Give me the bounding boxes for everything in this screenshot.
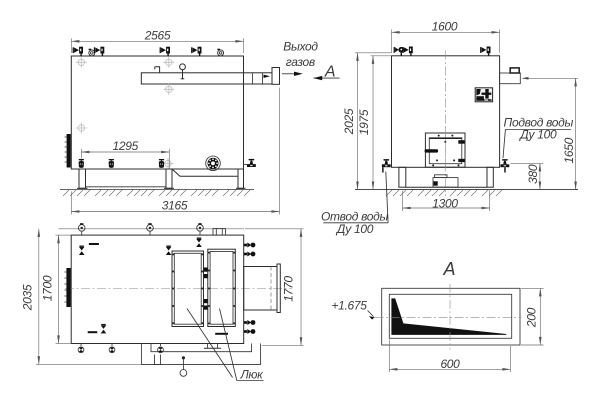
- svg-text:Ду 100: Ду 100: [335, 222, 374, 236]
- svg-text:200: 200: [525, 307, 539, 328]
- svg-text:3165: 3165: [162, 199, 188, 213]
- svg-text:2035: 2035: [21, 284, 35, 311]
- svg-text:1650: 1650: [562, 137, 576, 163]
- svg-text:газов: газов: [286, 55, 315, 69]
- svg-text:380: 380: [526, 164, 540, 184]
- svg-text:1975: 1975: [357, 109, 371, 135]
- svg-text:1700: 1700: [41, 275, 55, 301]
- svg-text:Люк: Люк: [239, 367, 264, 381]
- svg-text:1600: 1600: [432, 20, 458, 34]
- svg-text:Выход: Выход: [283, 40, 318, 54]
- svg-text:1300: 1300: [432, 196, 458, 210]
- svg-text:2565: 2565: [144, 29, 171, 43]
- svg-text:А: А: [442, 259, 455, 279]
- svg-text:1295: 1295: [113, 139, 139, 153]
- svg-text:600: 600: [440, 357, 460, 371]
- svg-text:2025: 2025: [342, 108, 356, 135]
- svg-text:+1.675: +1.675: [331, 299, 367, 313]
- svg-text:1770: 1770: [282, 276, 296, 302]
